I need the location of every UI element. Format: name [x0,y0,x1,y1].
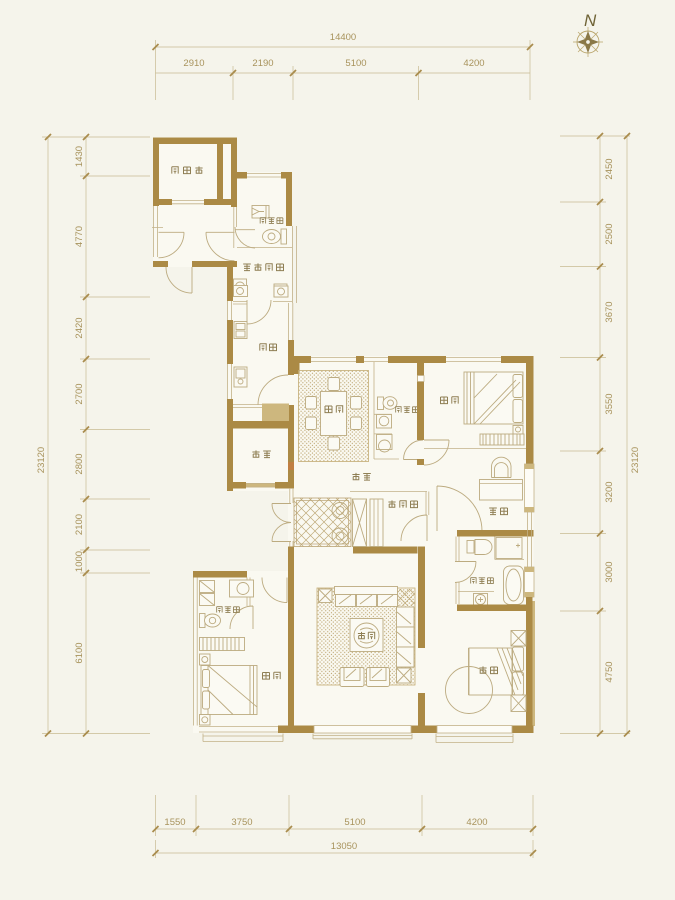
svg-text:3750: 3750 [231,817,252,828]
svg-text:2100: 2100 [74,514,85,535]
svg-text:14400: 14400 [330,32,356,43]
svg-text:5100: 5100 [344,817,365,828]
svg-text:2700: 2700 [74,383,85,404]
svg-text:2910: 2910 [183,58,204,69]
svg-text:2800: 2800 [74,453,85,474]
svg-text:5100: 5100 [345,58,366,69]
svg-text:N: N [584,11,597,30]
svg-text:13050: 13050 [331,841,357,852]
svg-text:4750: 4750 [604,661,615,682]
svg-text:23120: 23120 [630,447,641,473]
svg-text:23120: 23120 [36,447,47,473]
svg-text:1000: 1000 [74,551,85,572]
svg-text:4200: 4200 [466,817,487,828]
svg-text:4200: 4200 [463,58,484,69]
svg-text:4770: 4770 [74,226,85,247]
svg-text:3200: 3200 [604,481,615,502]
svg-text:1550: 1550 [164,817,185,828]
svg-text:2500: 2500 [604,223,615,244]
svg-text:6100: 6100 [74,642,85,663]
svg-text:3670: 3670 [604,301,615,322]
svg-text:2450: 2450 [604,158,615,179]
svg-text:2190: 2190 [252,58,273,69]
svg-text:1430: 1430 [74,146,85,167]
svg-text:3000: 3000 [604,561,615,582]
svg-text:2420: 2420 [74,317,85,338]
svg-text:3550: 3550 [604,393,615,414]
